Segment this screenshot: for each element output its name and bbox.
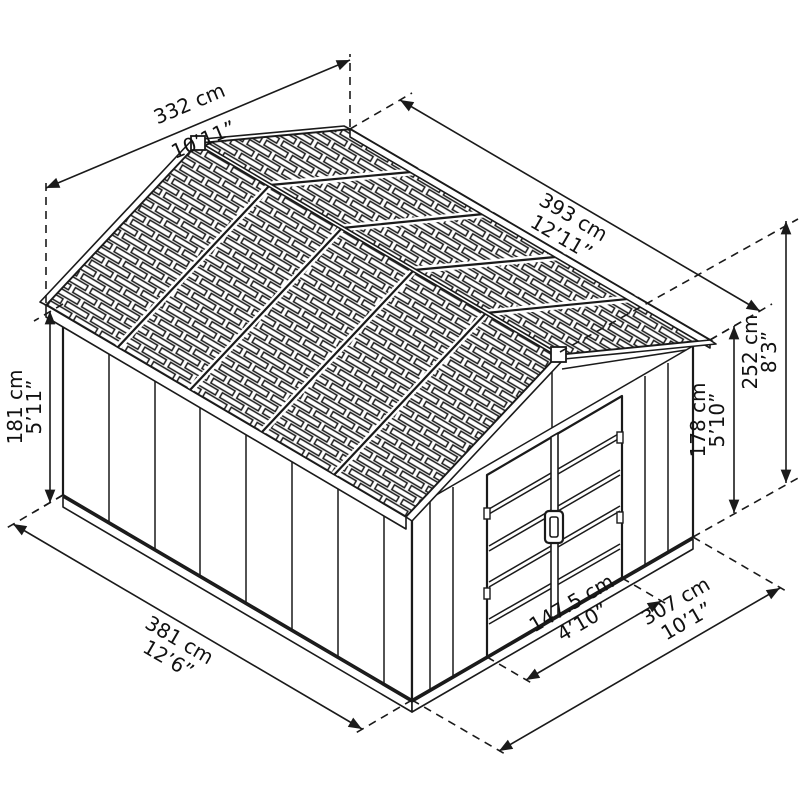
- shed-dimension-diagram: 332 cm 10’11” 393 cm 12’11” 252 cm 8’3” …: [0, 0, 800, 800]
- dimension-side-wall-height: 181 cm 5’11”: [3, 304, 63, 512]
- dim-label-imperial: 8’3”: [757, 331, 781, 373]
- dim-label-imperial: 5’10”: [705, 393, 729, 448]
- dim-label-imperial: 5’11”: [22, 380, 46, 435]
- door-handle: [545, 511, 563, 543]
- diagram-svg: 332 cm 10’11” 393 cm 12’11” 252 cm 8’3” …: [0, 0, 800, 800]
